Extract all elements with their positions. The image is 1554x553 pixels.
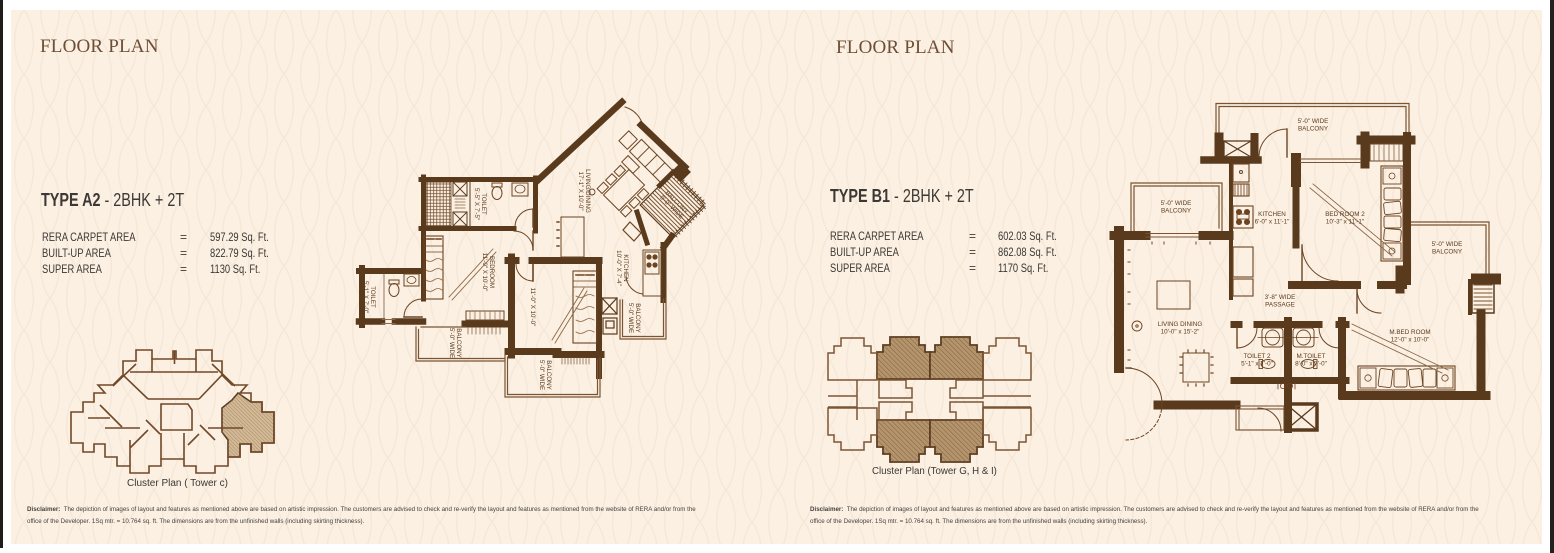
svg-text:M.BED ROOM12'-0" x 10'-0": M.BED ROOM12'-0" x 10'-0" xyxy=(1389,329,1430,344)
svg-text:5'-0" WIDEBALCONY: 5'-0" WIDEBALCONY xyxy=(1161,200,1192,215)
svg-text:11'-0" X 10'-0": 11'-0" X 10'-0" xyxy=(529,288,536,327)
svg-text:TOILET5'-5" X 7'-5": TOILET5'-5" X 7'-5" xyxy=(473,188,487,220)
svg-text:BEDROOM11'-0" X 10'-0": BEDROOM11'-0" X 10'-0" xyxy=(481,253,495,292)
svg-text:M.TOILET8'-0" x 7'-0": M.TOILET8'-0" x 7'-0" xyxy=(1295,353,1327,368)
svg-text:BALCONY5'-0" WIDE: BALCONY5'-0" WIDE xyxy=(627,303,641,333)
svg-text:3'-8" WIDEPASSAGE: 3'-8" WIDEPASSAGE xyxy=(1265,294,1296,309)
svg-text:BED ROOM 210'-3" x 11'-1": BED ROOM 210'-3" x 11'-1" xyxy=(1325,211,1365,226)
svg-text:LIVING DINING10'-0" x 15'-2": LIVING DINING10'-0" x 15'-2" xyxy=(1158,321,1203,336)
svg-text:5'-0" WIDEBALCONY: 5'-0" WIDEBALCONY xyxy=(1432,241,1463,256)
svg-text:TOILET5'-1" X 7'-0": TOILET5'-1" X 7'-0" xyxy=(362,281,376,313)
svg-text:LIVING/DINING17'-1" X 10'-0": LIVING/DINING17'-1" X 10'-0" xyxy=(577,169,591,213)
svg-text:5'-0" WIDEBALCONY: 5'-0" WIDEBALCONY xyxy=(1298,118,1329,133)
svg-text:BALCONY5'-0" WIDE: BALCONY5'-0" WIDE xyxy=(448,328,462,358)
svg-text:KITCHEN10'-0" X 7'-4": KITCHEN10'-0" X 7'-4" xyxy=(615,250,629,286)
svg-text:KITCHEN6'-0" x 11'-1": KITCHEN6'-0" x 11'-1" xyxy=(1255,211,1290,226)
svg-text:BALCONY5'-0" WIDE: BALCONY5'-0" WIDE xyxy=(538,360,552,390)
svg-text:TOILET 25'-1" x 7'-0": TOILET 25'-1" x 7'-0" xyxy=(1241,353,1273,368)
